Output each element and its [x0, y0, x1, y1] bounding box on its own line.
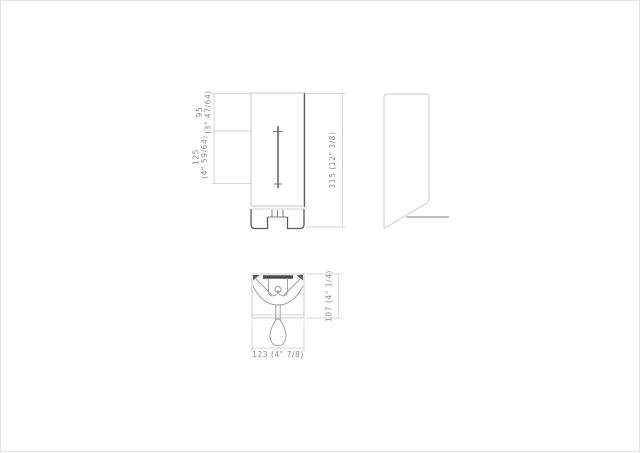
plan-view	[252, 274, 304, 346]
dim-label-95-inch: (3" 47/64)	[204, 90, 213, 134]
plan-lever-teardrop	[270, 319, 286, 346]
dim-overall-height: 315 (12" 3/8)	[306, 94, 346, 228]
dim-depth: 107 (4" 1/4)	[306, 270, 342, 322]
dimension-annotations: 95 (3" 47/64) 125 (4" 59/64) 315 (12" 3/…	[192, 90, 347, 359]
dim-width: 123 (4" 7/8)	[252, 321, 304, 359]
plan-lever	[270, 305, 286, 346]
technical-drawing-canvas: 95 (3" 47/64) 125 (4" 59/64) 315 (12" 3/…	[0, 0, 640, 452]
pump-rod	[273, 126, 283, 188]
side-view	[384, 94, 449, 229]
front-bottom-bracket	[251, 209, 304, 229]
dispenser-dimension-drawing: 95 (3" 47/64) 125 (4" 59/64) 315 (12" 3/…	[1, 1, 640, 453]
front-view	[251, 93, 305, 229]
dim-label-315: 315 (12" 3/8)	[328, 131, 337, 188]
dim-spout-offset: 95 (3" 47/64) 125 (4" 59/64)	[192, 90, 252, 183]
dim-label-107: 107 (4" 1/4)	[325, 270, 334, 322]
dim-label-123: 123 (4" 7/8)	[252, 350, 304, 359]
dim-label-125-inch: (4" 59/64)	[200, 135, 209, 179]
side-profile-outline	[384, 94, 429, 229]
plan-pump-detail	[269, 278, 288, 296]
